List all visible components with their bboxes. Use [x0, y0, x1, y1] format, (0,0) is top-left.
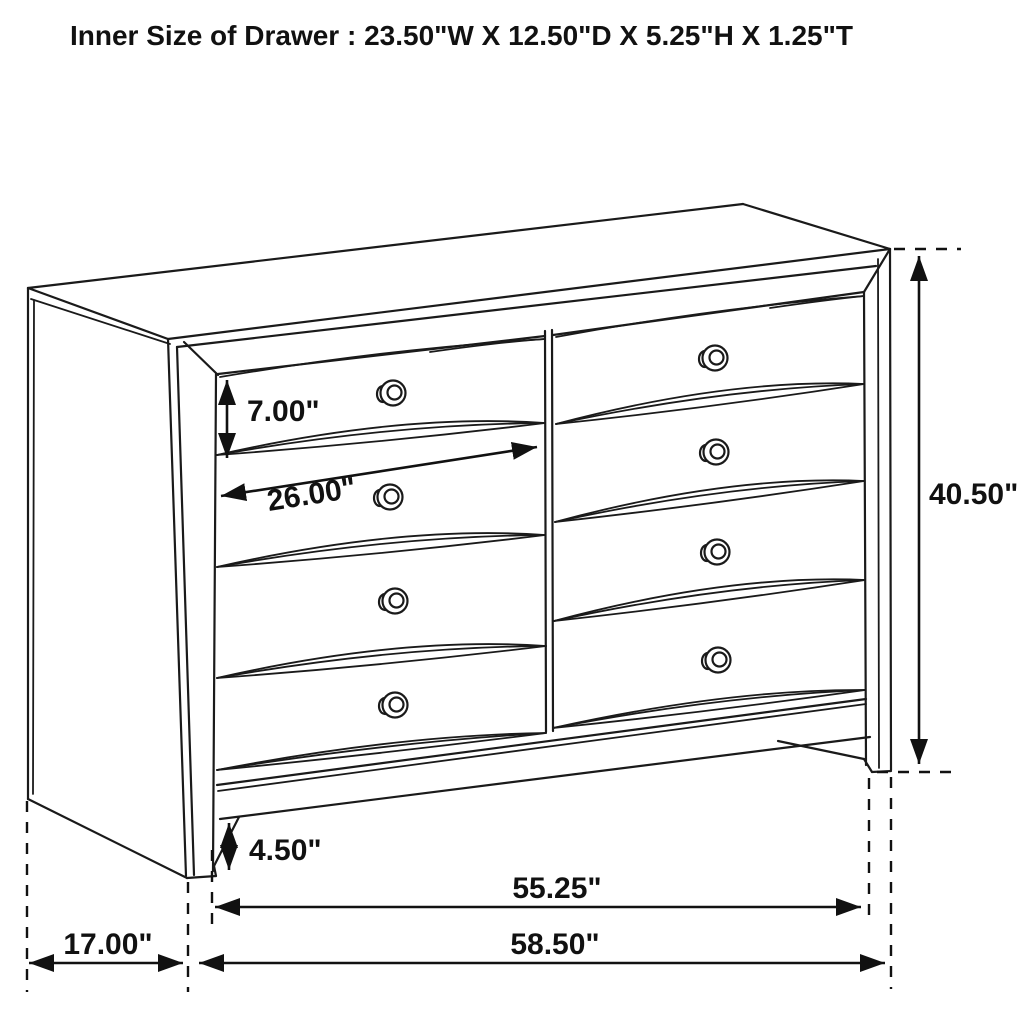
dimension-label-drawer-width: 26.00": [265, 471, 358, 518]
drawer-knob-icon: [702, 648, 731, 673]
dimension-base-height: 4.50": [229, 823, 322, 870]
drawer-knob-icon: [377, 381, 406, 406]
dimension-overall-width: 58.50": [199, 928, 885, 963]
extension-lines: [27, 249, 961, 992]
dimension-drawer-width: 26.00": [221, 447, 537, 518]
dimension-label-base-width: 55.25": [512, 872, 601, 905]
drawer-knob-icon: [699, 346, 728, 371]
drawer-knob-icon: [379, 589, 408, 614]
dimension-label-drawer-height: 7.00": [247, 395, 320, 428]
dimension-depth: 17.00": [29, 928, 183, 963]
dimension-base-width: 55.25": [215, 872, 861, 907]
dimension-label-base-height: 4.50": [249, 834, 322, 867]
dimension-diagram-page: Inner Size of Drawer : 23.50"W X 12.50"D…: [0, 0, 1024, 1024]
drawer-knob-icon: [701, 540, 730, 565]
dimension-label-depth: 17.00": [63, 928, 152, 961]
dresser-outline: [28, 204, 891, 878]
drawer-knob-icon: [379, 693, 408, 718]
dimension-label-overall-height: 40.50": [929, 478, 1018, 511]
drawer-knob-icon: [700, 440, 729, 465]
dresser-drawing: 7.00" 26.00" 40.50" 4.50" 55.25" 58.50" …: [0, 0, 1024, 1024]
drawer-knob-icon: [374, 485, 403, 510]
dimension-label-overall-width: 58.50": [510, 928, 599, 961]
dimension-overall-height: 40.50": [919, 256, 1018, 764]
